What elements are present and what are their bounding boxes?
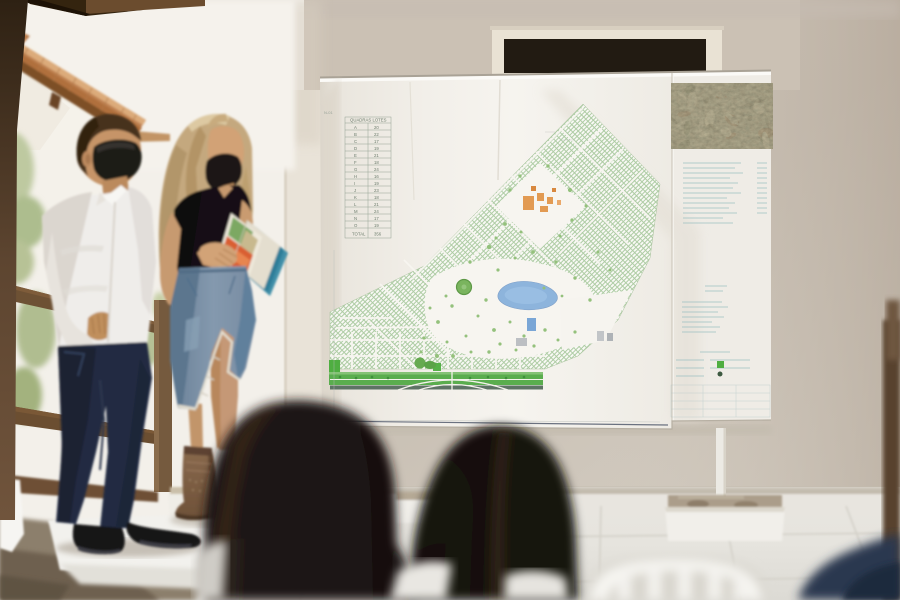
svg-text:17: 17 [374,139,379,144]
svg-text:E: E [354,153,357,158]
svg-text:B: B [354,132,357,137]
svg-text:18: 18 [374,160,379,165]
svg-text:A: A [354,125,357,130]
svg-text:F: F [354,160,357,165]
svg-text:19: 19 [374,181,379,186]
svg-text:N-01: N-01 [324,110,333,115]
svg-text:K: K [354,195,357,200]
svg-text:C: C [354,139,357,144]
svg-text:356: 356 [374,232,382,237]
svg-text:18: 18 [374,195,379,200]
svg-text:19: 19 [374,146,379,151]
svg-text:16: 16 [374,174,379,179]
svg-text:M: M [354,209,358,214]
svg-text:D: D [354,146,357,151]
svg-text:TOTAL: TOTAL [352,232,366,237]
svg-text:23: 23 [374,188,379,193]
svg-text:J: J [354,188,356,193]
svg-text:20: 20 [374,125,379,130]
svg-text:I: I [354,181,355,186]
svg-text:QUADRAS LOTES: QUADRAS LOTES [350,118,387,123]
svg-text:24: 24 [374,167,379,172]
svg-text:19: 19 [374,223,379,228]
svg-text:21: 21 [374,153,379,158]
svg-text:21: 21 [374,202,379,207]
svg-text:22: 22 [374,132,379,137]
svg-text:N: N [354,216,357,221]
svg-text:H: H [354,174,357,179]
svg-text:17: 17 [374,216,379,221]
svg-text:24: 24 [374,209,379,214]
